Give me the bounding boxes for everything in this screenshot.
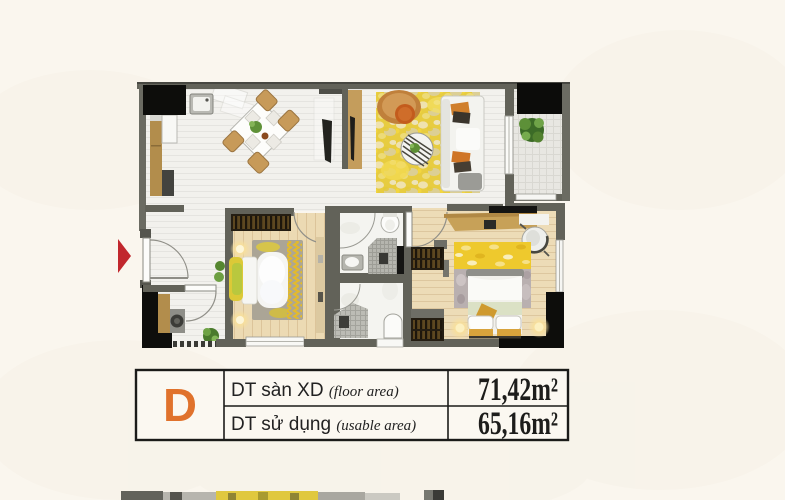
- svg-text:DT sử dụng (usable area): DT sử dụng (usable area): [231, 414, 416, 435]
- svg-text:DT sàn XD (floor area): DT sàn XD (floor area): [231, 380, 399, 401]
- svg-text:65,16m²: 65,16m²: [478, 406, 558, 442]
- svg-text:71,42m²: 71,42m²: [478, 372, 558, 408]
- svg-text:D: D: [163, 379, 197, 431]
